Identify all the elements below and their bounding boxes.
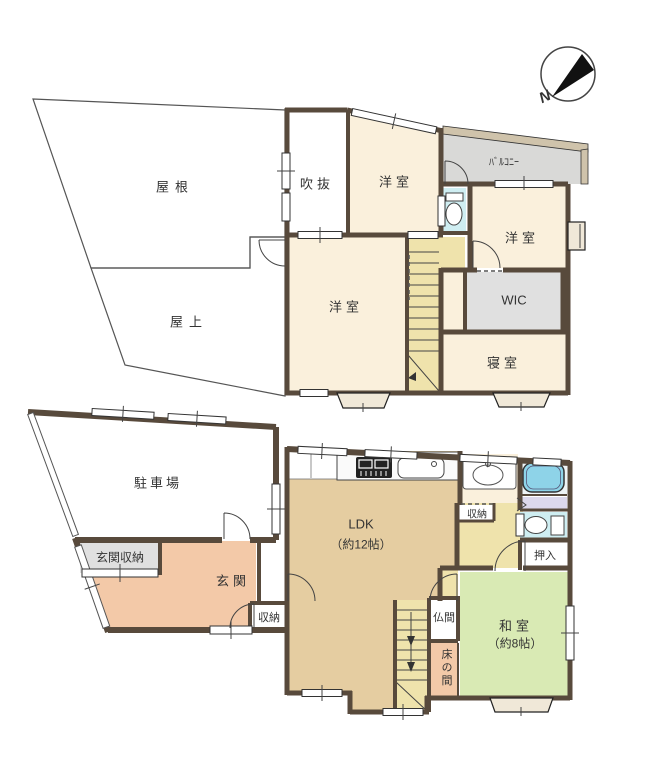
toilet-2f-icon (446, 193, 463, 225)
western-room-top-label: 洋室 (379, 172, 413, 191)
bay-box-2f (568, 222, 585, 250)
sink-icon (398, 458, 444, 478)
butsuma-label: 仏間 (433, 609, 455, 625)
stairs1f-floor (396, 600, 428, 712)
hall-closet-label: 収納 (467, 506, 487, 521)
entrance-closet-label: 収納 (258, 609, 280, 625)
wic-label: WIC (501, 293, 526, 308)
ldk-label: LDK (348, 517, 373, 532)
rooftop-label: 屋上 (170, 312, 208, 331)
ldk-size-label: （約12帖） (330, 536, 391, 553)
tokonoma-label: 床の間 (438, 649, 454, 688)
oshiire-label: 押入 (534, 547, 556, 563)
parking-label: 駐車場 (134, 473, 182, 492)
changing-strip-floor (520, 497, 567, 510)
western-room-right-label: 洋室 (505, 228, 539, 247)
entrance-storage-label: 玄関収納 (96, 549, 144, 566)
japanese-room-label: 和室 (499, 616, 533, 635)
roof-label: 屋根 (156, 177, 194, 196)
balcony-label: ﾊﾞﾙｺﾆｰ (489, 154, 519, 169)
floor-plan-graphic (0, 0, 654, 768)
western-room-large-label: 洋室 (329, 297, 363, 316)
japanese-room-size-label: （約8帖） (488, 635, 543, 652)
void-label: 吹抜 (300, 174, 334, 193)
stove-icon (356, 457, 392, 478)
floor-plan-page: 屋根 屋上 吹抜 洋室 ﾊﾞﾙｺﾆｰ 洋室 WIC 寝室 洋室 駐車場 玄関収納… (0, 0, 654, 768)
entrance-label: 玄関 (216, 571, 250, 590)
bedroom-label: 寝室 (487, 353, 521, 372)
bathtub-icon (523, 463, 564, 492)
roof-outline (33, 99, 285, 396)
